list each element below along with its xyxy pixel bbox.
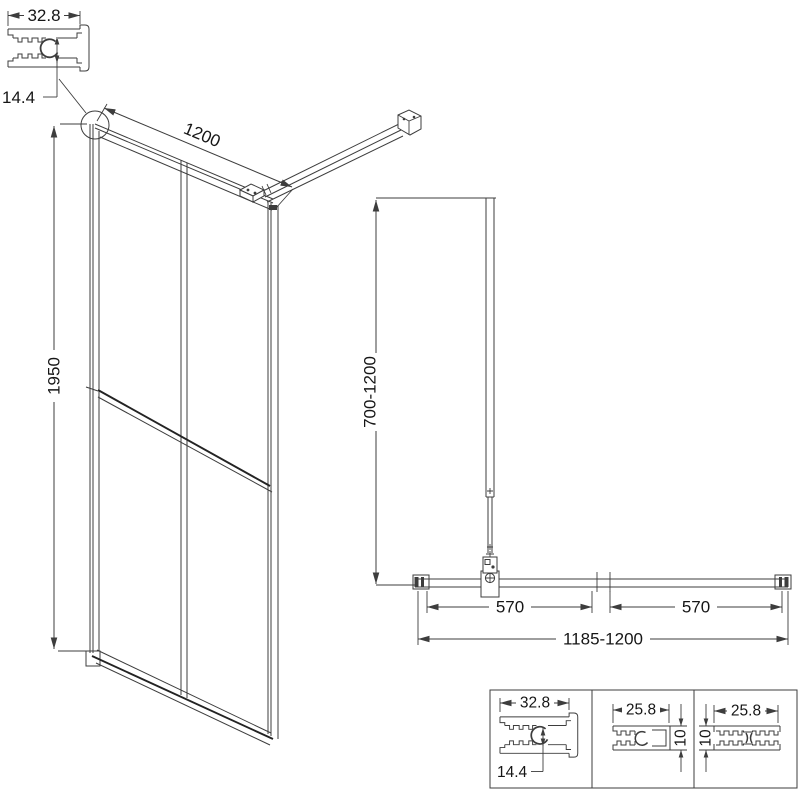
dim-screen-width: 1200: [181, 119, 223, 151]
dim-detail3-width: 25.8: [731, 703, 761, 720]
plan-view: 700-1200 570 570 1185-1200: [361, 198, 792, 649]
dim-screen-height: 1950: [45, 357, 64, 395]
wall-bracket: [398, 110, 421, 135]
dim-glass-right-section: 570: [682, 598, 710, 617]
dim-detail1-height: 14.4: [497, 764, 528, 781]
wall-profile-callout: 32.8 14.4: [2, 6, 89, 113]
dim-detail1-width: 32.8: [520, 695, 550, 712]
dim-glass-left-section: 570: [496, 598, 524, 617]
detail-leader-line: [59, 79, 86, 113]
detail-cell-glass-profile: 32.8 14.4: [497, 695, 578, 782]
glass-panel-plan: [413, 572, 791, 592]
support-bar-plan: [486, 198, 494, 557]
detail-cell-c-profile: 25.8 10: [613, 702, 690, 773]
support-bar: [240, 110, 421, 202]
technical-drawing-canvas: 32.8 14.4: [0, 0, 800, 800]
dim-detail2-height: 10: [673, 729, 690, 747]
detail-circle: [81, 111, 109, 139]
dim-detail3-height: 10: [698, 729, 715, 747]
wall-profile-section: [8, 25, 89, 71]
detail-cell-h-profile: 25.8 10: [698, 703, 781, 773]
glass-grid-midrail: [98, 390, 270, 486]
glass-clamp-plan: [481, 557, 499, 597]
dim-detail2-width: 25.8: [626, 702, 656, 719]
corner-fitting: [269, 205, 277, 210]
dim-support-bar-length: 700-1200: [361, 356, 380, 428]
dim-wall-profile-height: 14.4: [2, 88, 35, 107]
profile-detail-table: 32.8 14.4 25.8 10 25.8: [490, 690, 797, 788]
dim-wall-profile-width: 32.8: [27, 6, 60, 25]
drawing-svg: 32.8 14.4: [0, 0, 800, 800]
dim-overall-width: 1185-1200: [563, 630, 643, 649]
glass-grid-mullion: [181, 160, 187, 698]
